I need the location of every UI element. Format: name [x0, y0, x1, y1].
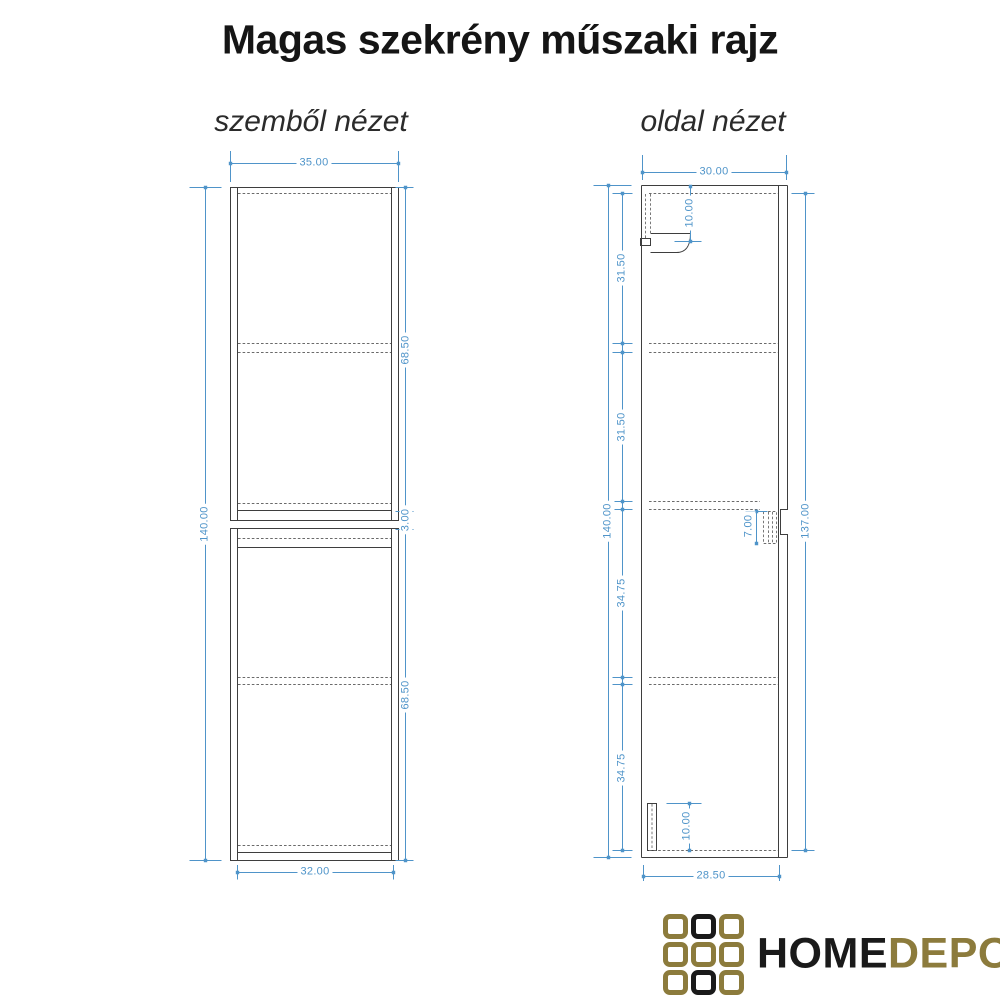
dim-side-segment-3: 34.75 [616, 575, 629, 610]
logo-text-depo: DEPO [888, 930, 1000, 979]
logo-grid [663, 914, 744, 995]
dim-front-middle-gap: 3.00 [400, 506, 413, 535]
dim-side-bracket-offset: 10.00 [684, 195, 697, 230]
logo-grid-cell [691, 970, 716, 995]
logo-grid-cell [691, 942, 716, 967]
dim-front-height-total: 140.00 [199, 503, 212, 544]
dim-front-width-top: 35.00 [296, 157, 331, 170]
technical-drawing-page: Magas szekrény műszaki rajz szemből néze… [0, 0, 1000, 1000]
logo-grid-cell [663, 970, 688, 995]
dim-side-depth-top: 30.00 [696, 166, 731, 179]
dim-side-segment-1: 31.50 [616, 250, 629, 285]
logo-grid-cell [663, 914, 688, 939]
dim-side-plinth-height: 10.00 [681, 808, 694, 843]
front-view-drawing [190, 151, 414, 880]
dim-side-front-panel-height: 137.00 [800, 500, 813, 541]
cabinet-technical-drawing [0, 0, 1000, 1000]
dim-side-depth-bottom: 28.50 [693, 870, 728, 883]
logo-text-home: HOME [757, 930, 888, 979]
logo-grid-cell [719, 914, 744, 939]
dim-side-height-total: 140.00 [602, 500, 615, 541]
dim-side-segment-4: 34.75 [616, 750, 629, 785]
dim-side-notch-depth: 7.00 [743, 512, 756, 541]
dim-side-segment-2: 31.50 [616, 409, 629, 444]
dim-front-width-bottom: 32.00 [297, 866, 332, 879]
logo-grid-cell [691, 914, 716, 939]
logo-grid-cell [719, 970, 744, 995]
dim-front-lower-section: 68.50 [400, 677, 413, 712]
logo-grid-cell [719, 942, 744, 967]
dim-front-upper-section: 68.50 [400, 332, 413, 367]
logo-grid-cell [663, 942, 688, 967]
logo-wordmark: HOME DEPO [757, 930, 1000, 979]
